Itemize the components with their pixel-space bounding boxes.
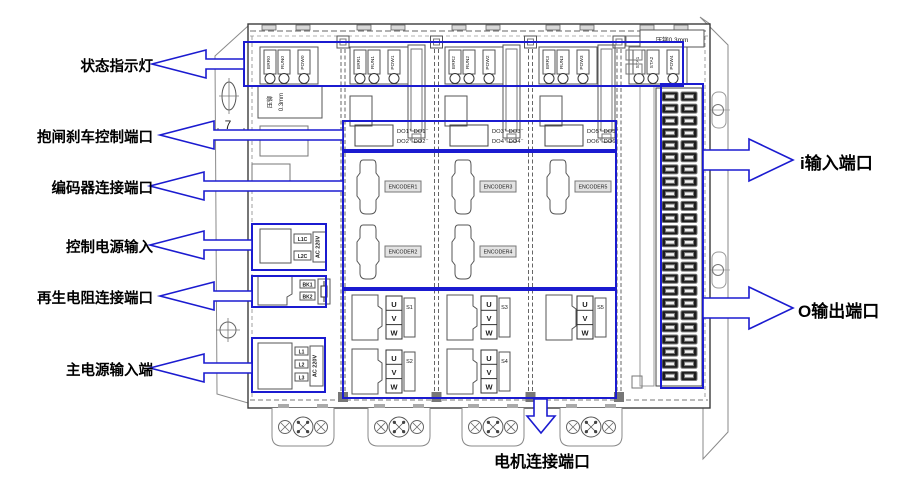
- led-lamp: [648, 74, 658, 84]
- phase-label: U: [391, 300, 396, 309]
- stamp-text-line1: 压铆: [266, 96, 274, 108]
- stamp-text-line2: 0.3mm: [279, 93, 285, 111]
- encoder-label: ENCODER4: [484, 250, 513, 256]
- do-port-label: DO2⁺ DO2⁻: [397, 138, 429, 145]
- phase-label: W: [485, 382, 493, 391]
- label-brake-control-port: 抱闸刹车控制端口: [8, 126, 153, 147]
- led-label: POW2: [485, 55, 491, 69]
- top-tab: [546, 25, 560, 30]
- do-port-label: DO5⁺ DO5⁻: [587, 128, 619, 135]
- led-label: ERR3: [545, 56, 551, 69]
- phase-label: V: [391, 368, 396, 377]
- led-label: ERR2: [451, 56, 457, 69]
- voltage-rating: AC 220V: [316, 236, 322, 259]
- voltage-rating: AC 220V: [313, 355, 319, 378]
- led-label: POW0: [300, 55, 306, 69]
- top-tab: [640, 25, 654, 30]
- top-tab: [452, 25, 466, 30]
- motor-id-label: S5: [597, 305, 604, 311]
- terminal-label: L1C: [298, 237, 308, 243]
- top-tab: [262, 25, 276, 30]
- led-label: ERR1: [356, 56, 362, 69]
- led-lamp: [389, 74, 399, 84]
- phase-label: U: [391, 354, 396, 363]
- led-lamp: [299, 74, 309, 84]
- encoder-connector: [452, 225, 474, 279]
- phase-label: U: [582, 300, 587, 309]
- phase-label: W: [390, 382, 398, 391]
- motor-connector-block: [272, 404, 334, 446]
- led-lamp: [578, 74, 588, 84]
- led-lamp: [634, 74, 644, 84]
- motor-connector-block: [368, 404, 430, 446]
- motor-id-label: S3: [501, 305, 508, 311]
- encoder-label: ENCODER5: [579, 185, 608, 191]
- terminal-label: BK2: [302, 295, 312, 301]
- terminal-label: L2: [299, 363, 305, 369]
- led-label: RUN2: [465, 56, 471, 69]
- led-lamp: [558, 74, 568, 84]
- phase-label: W: [581, 328, 589, 337]
- motor-connector: [352, 295, 382, 340]
- phase-label: V: [486, 314, 491, 323]
- top-tab: [580, 25, 594, 30]
- motor-id-label: S2: [406, 359, 413, 365]
- terminal-label: L2C: [298, 254, 308, 260]
- led-label: POW1: [390, 55, 396, 69]
- label-output-port: O输出端口: [798, 297, 879, 322]
- encoder-label: ENCODER1: [389, 185, 418, 191]
- servo-drive-diagram: 7 压铆 0.3mm L1C: [0, 0, 900, 487]
- motor-connector: [447, 295, 477, 340]
- encoder-label: ENCODER2: [389, 250, 418, 256]
- phase-label: W: [485, 328, 493, 337]
- top-tab: [674, 25, 688, 30]
- led-lamp: [355, 74, 365, 84]
- top-tab: [486, 25, 500, 30]
- motor-connector: [546, 295, 576, 340]
- phase-label: V: [391, 314, 396, 323]
- do-port-label: DO6⁺ DO6⁻: [587, 138, 619, 145]
- led-lamp: [279, 74, 289, 84]
- encoder-connector: [357, 225, 379, 279]
- encoder-connector: [547, 160, 569, 214]
- led-lamp: [668, 74, 678, 84]
- top-tab: [357, 25, 371, 30]
- phase-label: W: [390, 328, 398, 337]
- motor-connector: [447, 349, 477, 394]
- encoder-connector: [452, 160, 474, 214]
- motor-connector: [352, 349, 382, 394]
- label-regen-resistor-port: 再生电阻连接端口: [8, 287, 153, 308]
- led-lamp: [450, 74, 460, 84]
- led-label: STA1: [635, 56, 641, 68]
- top-tab: [391, 25, 405, 30]
- led-label: RUN0: [280, 56, 286, 69]
- terminal-label: BK1: [302, 283, 312, 289]
- led-lamp: [484, 74, 494, 84]
- motor-id-box: [595, 298, 606, 337]
- label-main-power-input: 主电源输入端: [8, 359, 153, 380]
- motor-id-label: S4: [501, 359, 508, 365]
- phase-label: U: [486, 300, 491, 309]
- do-port-label: DO1⁺ DO1⁻: [397, 128, 429, 135]
- led-label: STA2: [649, 56, 655, 68]
- terminal-label: L3: [299, 376, 305, 382]
- led-label: ERR0: [266, 56, 272, 69]
- do-port-label: DO3⁺ DO3⁻: [492, 128, 524, 135]
- encoder-label: ENCODER3: [484, 185, 513, 191]
- bottom-motor-connectors: [272, 404, 622, 446]
- led-lamp: [265, 74, 275, 84]
- led-lamp: [464, 74, 474, 84]
- label-control-power-input: 控制电源输入: [8, 236, 153, 257]
- motor-id-box: [499, 298, 510, 337]
- motor-id-box: [499, 352, 510, 391]
- do-port-label: DO4⁺ DO4⁻: [492, 138, 524, 145]
- led-label: POW4: [669, 55, 675, 69]
- label-input-port: i输入端口: [800, 149, 873, 174]
- led-lamp: [369, 74, 379, 84]
- motor-connector-block: [560, 404, 622, 446]
- label-motor-port: 电机连接端口: [494, 448, 590, 472]
- top-tab: [296, 25, 310, 30]
- terminal-label: L1: [299, 350, 305, 356]
- label-status-indicators: 状态指示灯: [8, 55, 153, 76]
- motor-id-box: [404, 352, 415, 391]
- encoder-connector: [357, 160, 379, 214]
- motor-connector-block: [462, 404, 524, 446]
- motor-id-box: [404, 298, 415, 337]
- phase-label: U: [486, 354, 491, 363]
- led-label: POW3: [579, 55, 585, 69]
- led-lamp: [544, 74, 554, 84]
- motor-id-label: S1: [406, 305, 413, 311]
- led-label: RUN3: [559, 56, 565, 69]
- phase-label: V: [486, 368, 491, 377]
- label-encoder-port: 编码器连接端口: [8, 177, 153, 198]
- led-label: RUN1: [370, 56, 376, 69]
- phase-label: V: [582, 314, 587, 323]
